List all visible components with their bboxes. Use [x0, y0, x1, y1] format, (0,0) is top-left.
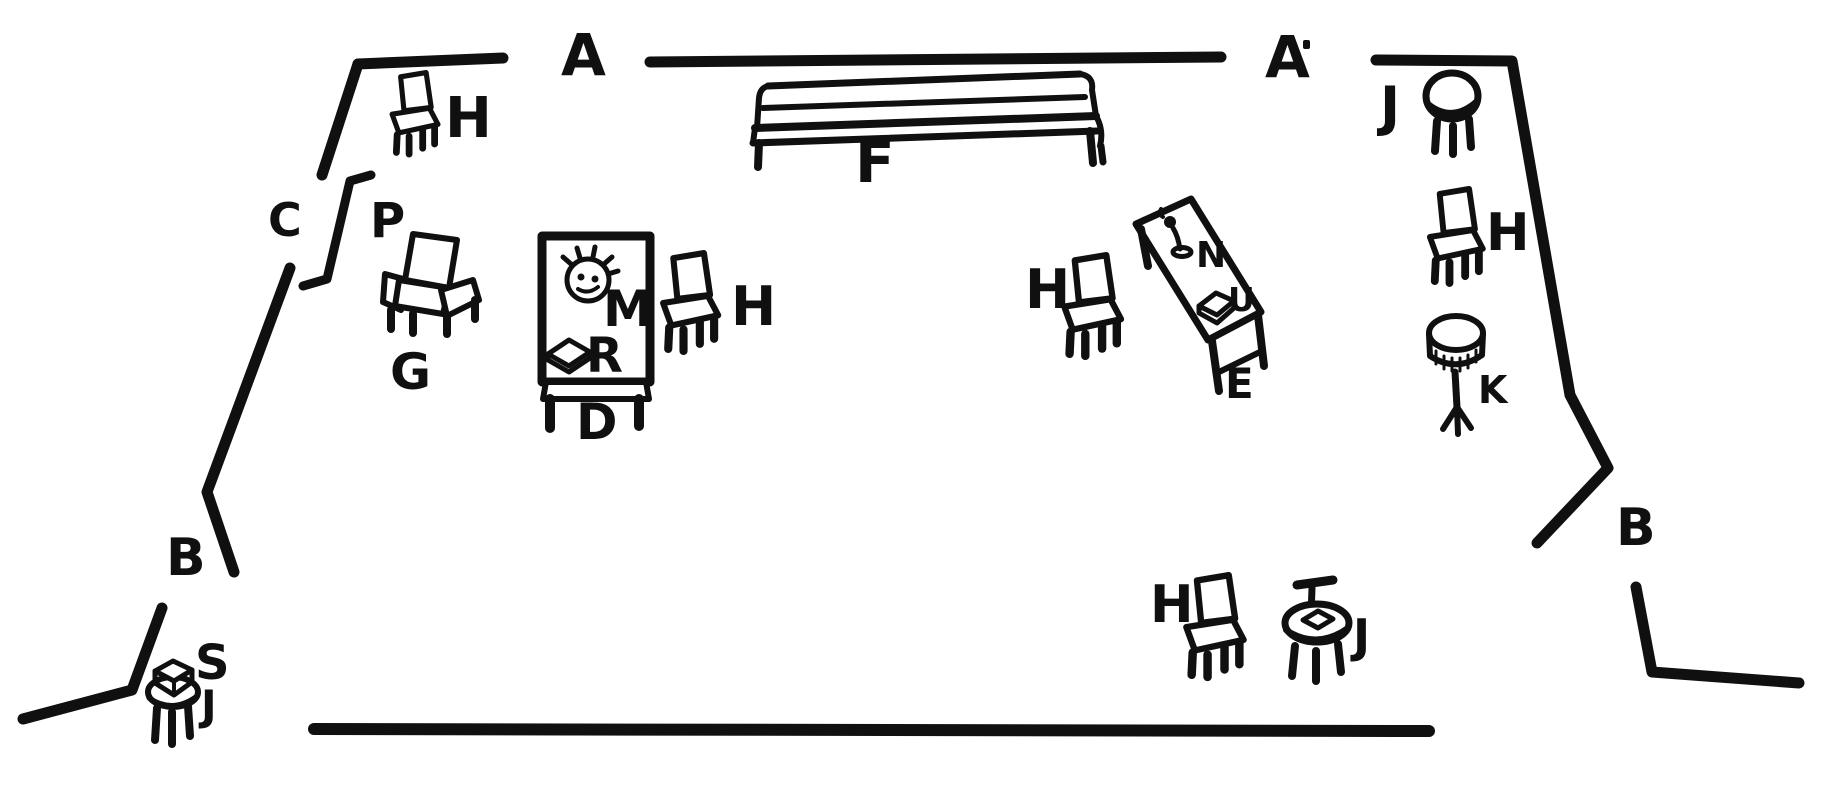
label-b-left: B: [166, 532, 206, 584]
back-wall-center: [650, 57, 1221, 62]
label-u-box-on-desk: U: [1228, 283, 1255, 316]
chair-h-by-table-d: [663, 253, 718, 351]
stool-j-up-right: [1426, 73, 1478, 154]
stage-floor-plan: A A B B C P D E F G H H H H H J J J K M …: [0, 0, 1821, 790]
label-r-book: R: [586, 332, 623, 380]
chair-h-right: [1430, 189, 1483, 283]
label-h-down-right: H: [1150, 579, 1194, 631]
label-f-settee: F: [855, 133, 895, 191]
settee-f: [753, 74, 1103, 167]
label-h-by-desk-e: H: [1025, 263, 1070, 317]
label-m-plant-bowl: M: [603, 284, 653, 334]
pedestal-k: [1429, 316, 1483, 434]
label-b-right: B: [1616, 502, 1656, 554]
label-j-up-right: J: [1380, 80, 1400, 134]
label-h-top-left: H: [445, 91, 492, 147]
label-g-armchair: G: [390, 347, 431, 397]
label-d-table: D: [576, 397, 618, 447]
back-wall-left: [358, 58, 503, 64]
label-h-by-table-d: H: [731, 280, 776, 334]
ink-speck: [1303, 40, 1310, 49]
label-s-box: S: [195, 639, 230, 687]
left-wall-upper: [322, 64, 358, 175]
chair-h-by-desk-e: [1064, 255, 1121, 356]
walls: [23, 57, 1799, 731]
chair-h-top-left: [392, 73, 438, 155]
left-wall-lower: [23, 608, 162, 719]
label-e-desk: E: [1225, 363, 1254, 405]
label-j-down-left: J: [201, 685, 217, 727]
label-h-right: H: [1486, 207, 1530, 259]
stool-j-down-left: [148, 661, 198, 744]
label-n-telephone: N: [1196, 238, 1226, 274]
right-wall-upper: [1376, 60, 1608, 543]
label-p-door: P: [370, 197, 405, 245]
label-j-down-right: J: [1353, 613, 1370, 659]
armchair-g: [383, 234, 479, 334]
floor-plan-drawing: [0, 0, 1821, 790]
right-wall-lower: [1636, 587, 1799, 683]
label-k-stand: K: [1478, 371, 1507, 409]
table-j-down-right: [1285, 580, 1349, 681]
stage-front-line: [314, 729, 1429, 731]
label-a-right: A: [1265, 28, 1310, 86]
label-a-left: A: [561, 26, 606, 84]
chair-h-down-right: [1186, 575, 1243, 677]
label-c-doorway: C: [268, 197, 302, 243]
left-wall-middle: [207, 268, 290, 572]
door-panel-p: [303, 175, 371, 286]
